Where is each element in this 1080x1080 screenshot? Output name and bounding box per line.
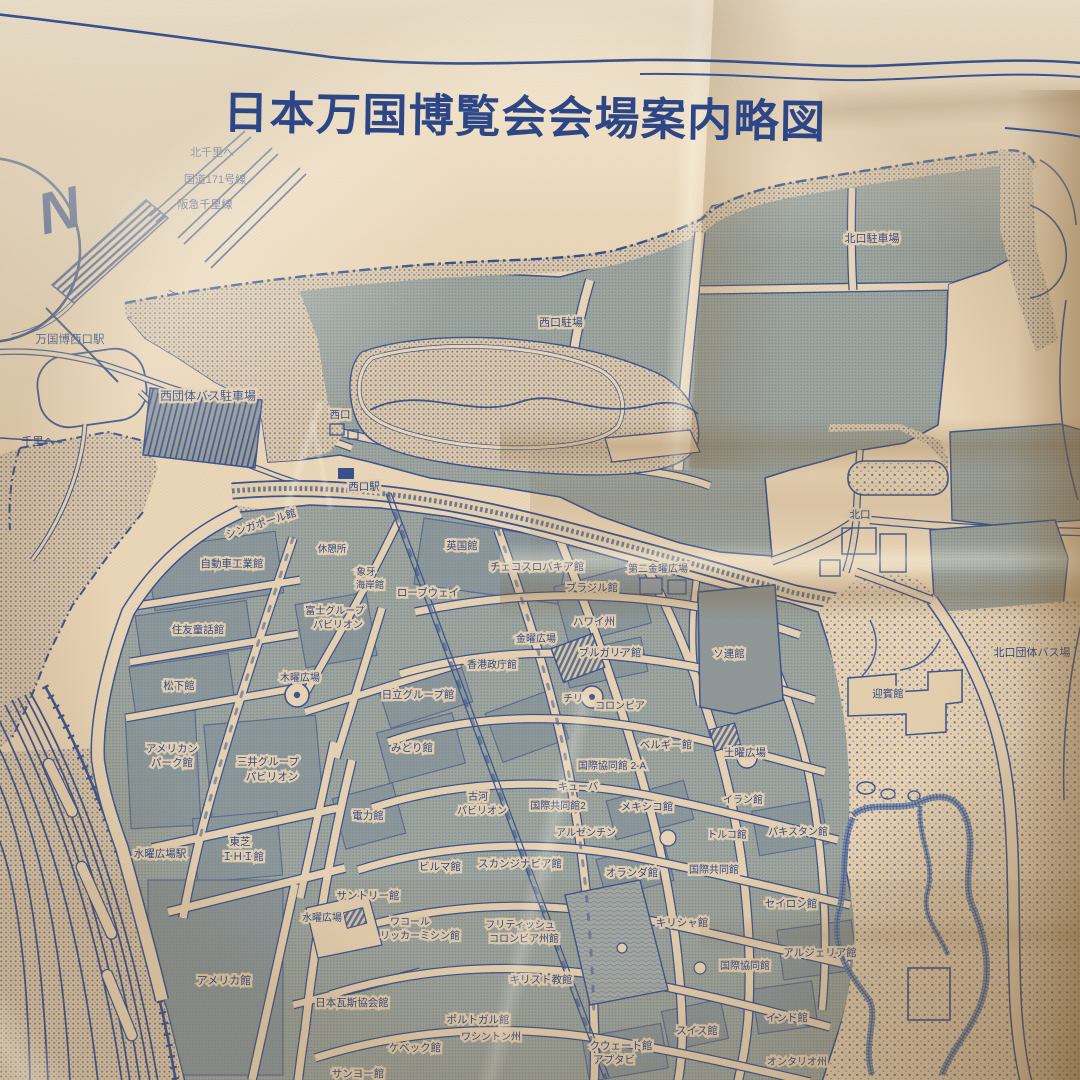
svg-text:日本万国博覧会会場案内略図: 日本万国博覧会会場案内略図 <box>223 87 827 147</box>
